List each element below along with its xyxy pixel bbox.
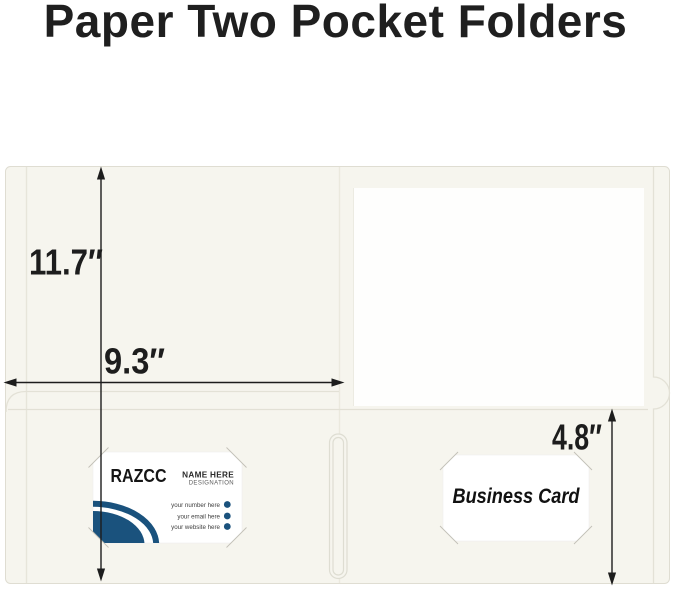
- svg-text:your website here: your website here: [171, 524, 220, 531]
- svg-text:9.3″: 9.3″: [104, 341, 165, 382]
- svg-text:Business Card: Business Card: [453, 485, 581, 508]
- svg-text:4.8″: 4.8″: [552, 417, 602, 458]
- svg-text:RAZCC: RAZCC: [111, 466, 167, 486]
- svg-text:your email here: your email here: [177, 514, 220, 521]
- svg-text:your number here: your number here: [171, 502, 220, 509]
- svg-text:DESIGNATION: DESIGNATION: [189, 481, 234, 487]
- svg-text:11.7″: 11.7″: [29, 242, 103, 283]
- svg-text:NAME HERE: NAME HERE: [182, 471, 234, 480]
